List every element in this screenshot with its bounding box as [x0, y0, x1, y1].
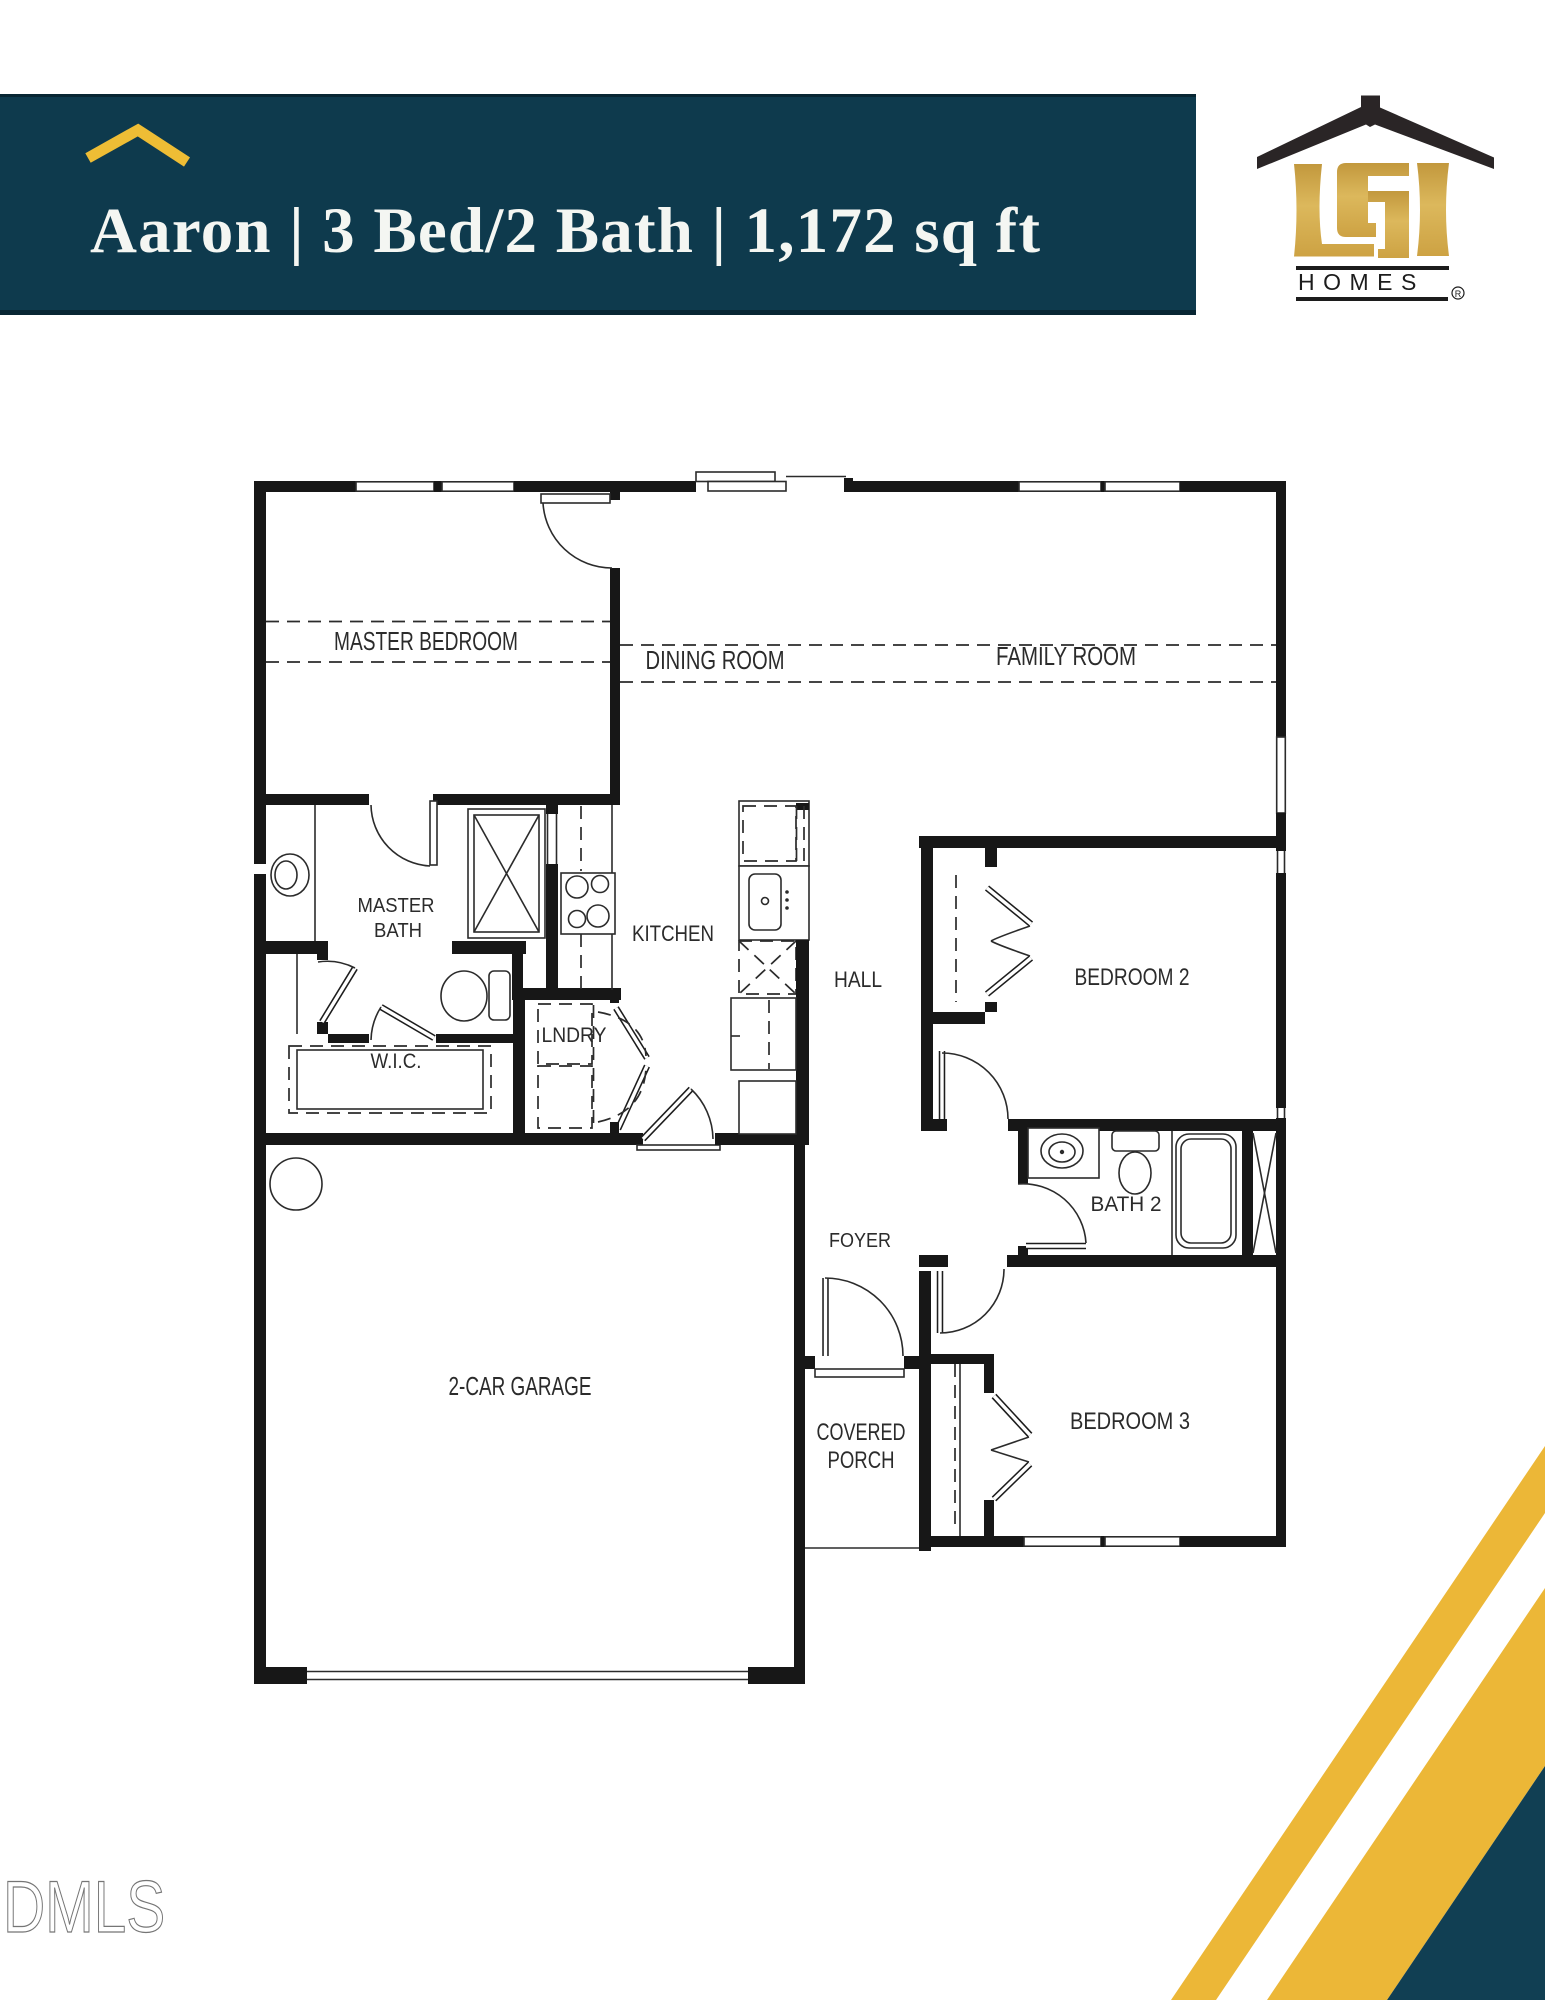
svg-text:BEDROOM 3: BEDROOM 3: [1070, 1408, 1190, 1435]
svg-text:LNDRY: LNDRY: [542, 1024, 607, 1047]
svg-text:2-CAR GARAGE: 2-CAR GARAGE: [449, 1371, 592, 1401]
svg-text:FOYER: FOYER: [829, 1230, 891, 1252]
svg-text:PORCH: PORCH: [828, 1447, 895, 1474]
svg-text:BEDROOM 2: BEDROOM 2: [1075, 964, 1190, 991]
svg-text:R: R: [1455, 289, 1462, 299]
svg-text:Aaron | 3 Bed/2 Bath | 1,172 s: Aaron | 3 Bed/2 Bath | 1,172 sq ft: [90, 195, 1041, 267]
svg-text:MASTER BEDROOM: MASTER BEDROOM: [334, 626, 518, 656]
svg-text:BATH: BATH: [374, 920, 422, 942]
svg-text:BATH 2: BATH 2: [1091, 1193, 1162, 1216]
svg-text:FAMILY ROOM: FAMILY ROOM: [996, 641, 1136, 671]
svg-text:MASTER: MASTER: [358, 895, 435, 917]
svg-text:W.I.C.: W.I.C.: [371, 1050, 422, 1073]
svg-text:DMLS: DMLS: [3, 1867, 165, 1949]
svg-text:HALL: HALL: [834, 967, 882, 992]
svg-text:DINING ROOM: DINING ROOM: [646, 645, 785, 675]
svg-text:KITCHEN: KITCHEN: [632, 921, 714, 946]
svg-text:HOMES: HOMES: [1298, 269, 1425, 295]
svg-text:COVERED: COVERED: [817, 1419, 906, 1446]
